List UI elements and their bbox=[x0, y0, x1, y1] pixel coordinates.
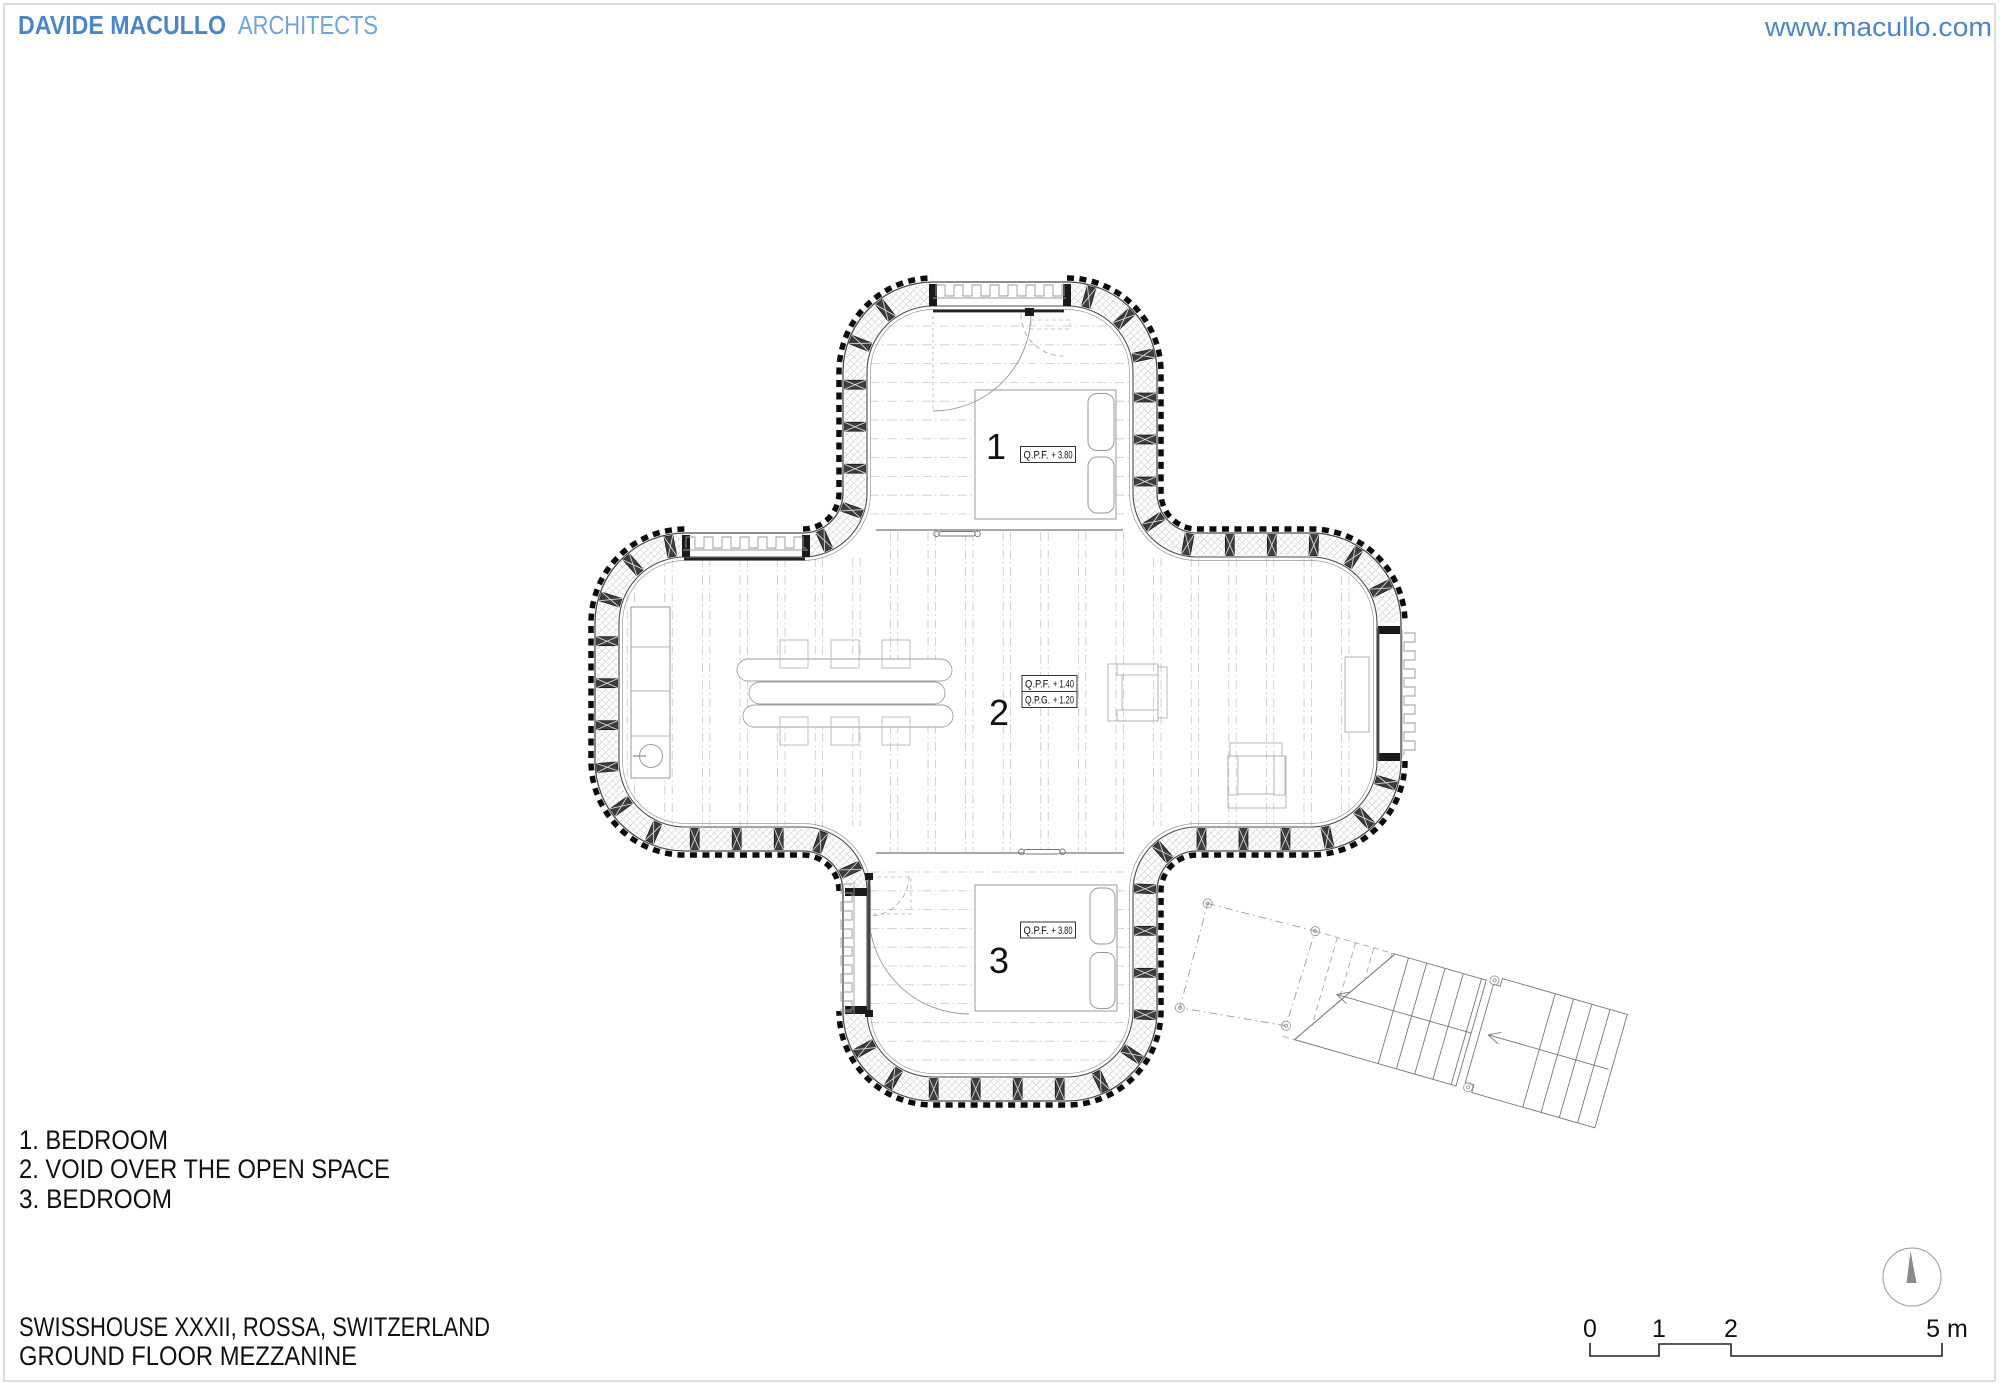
svg-text:3: 3 bbox=[989, 940, 1009, 981]
svg-text:Q.P.F.: Q.P.F. bbox=[1025, 679, 1050, 691]
svg-text:1: 1 bbox=[986, 426, 1006, 467]
svg-text:1. BEDROOM: 1. BEDROOM bbox=[19, 1125, 168, 1155]
svg-text:www.macullo.com: www.macullo.com bbox=[1764, 12, 1992, 42]
svg-text:0: 0 bbox=[1583, 1315, 1597, 1343]
svg-text:ARCHITECTS: ARCHITECTS bbox=[238, 10, 378, 40]
svg-text:5 m: 5 m bbox=[1926, 1315, 1968, 1343]
svg-text:+ 1.40: + 1.40 bbox=[1053, 679, 1074, 691]
svg-text:Q.P.F.: Q.P.F. bbox=[1024, 925, 1049, 937]
svg-text:SWISSHOUSE XXXII, ROSSA, SWITZ: SWISSHOUSE XXXII, ROSSA, SWITZERLAND bbox=[19, 1312, 490, 1342]
svg-text:Q.P.F.: Q.P.F. bbox=[1024, 450, 1049, 462]
svg-text:Q.P.G.: Q.P.G. bbox=[1025, 695, 1050, 707]
svg-text:DAVIDE MACULLO: DAVIDE MACULLO bbox=[18, 10, 226, 40]
svg-text:2. VOID OVER THE OPEN SPACE: 2. VOID OVER THE OPEN SPACE bbox=[19, 1154, 390, 1184]
svg-text:+ 3.80: + 3.80 bbox=[1052, 450, 1073, 462]
svg-text:+ 3.80: + 3.80 bbox=[1052, 925, 1073, 937]
svg-text:+ 1.20: + 1.20 bbox=[1053, 695, 1074, 707]
svg-text:2: 2 bbox=[989, 692, 1009, 733]
svg-text:GROUND FLOOR MEZZANINE: GROUND FLOOR MEZZANINE bbox=[19, 1341, 357, 1371]
svg-text:1: 1 bbox=[1652, 1315, 1666, 1343]
svg-text:3. BEDROOM: 3. BEDROOM bbox=[19, 1184, 172, 1214]
svg-text:2: 2 bbox=[1724, 1315, 1738, 1343]
